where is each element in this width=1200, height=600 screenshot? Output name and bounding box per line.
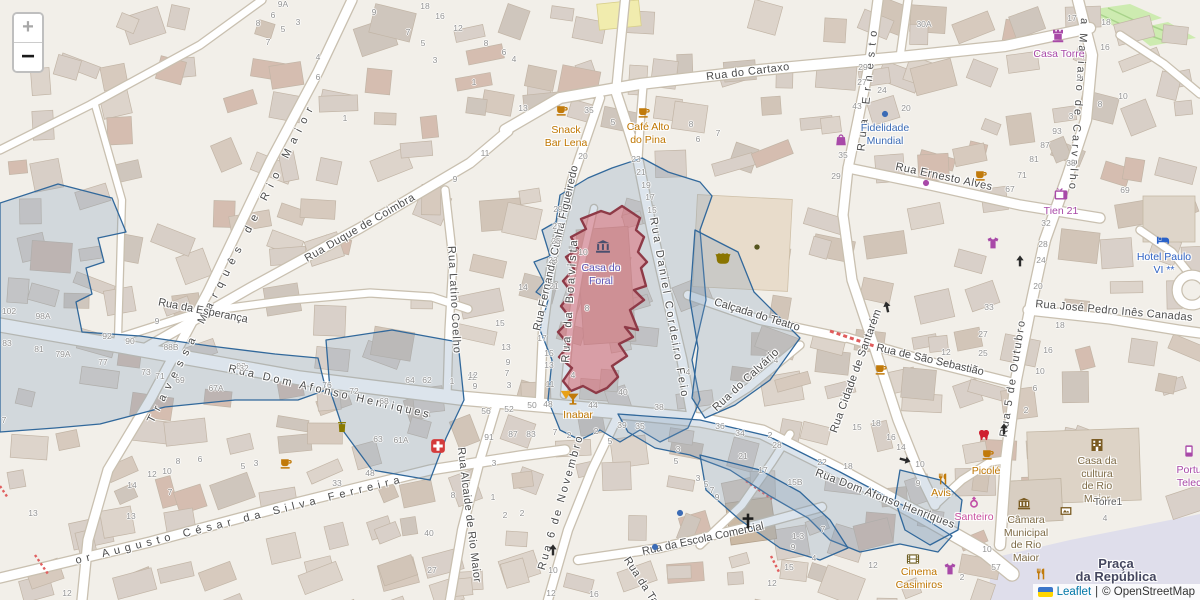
ukraine-flag-icon bbox=[1038, 587, 1053, 597]
map-canvas[interactable]: Travessa Marquês de Rio MaiorRua Duque d… bbox=[0, 0, 1200, 600]
attribution-bar: Leaflet | © OpenStreetMap bbox=[1033, 584, 1200, 600]
openstreetmap-link[interactable]: © OpenStreetMap bbox=[1102, 586, 1195, 598]
zoom-out-button[interactable]: − bbox=[14, 43, 42, 71]
leaflet-link[interactable]: Leaflet bbox=[1057, 586, 1092, 598]
zoom-control: + − bbox=[12, 12, 44, 73]
zoom-in-button[interactable]: + bbox=[14, 14, 42, 43]
attribution-separator: | bbox=[1095, 586, 1098, 598]
map-tiles bbox=[0, 0, 1200, 600]
